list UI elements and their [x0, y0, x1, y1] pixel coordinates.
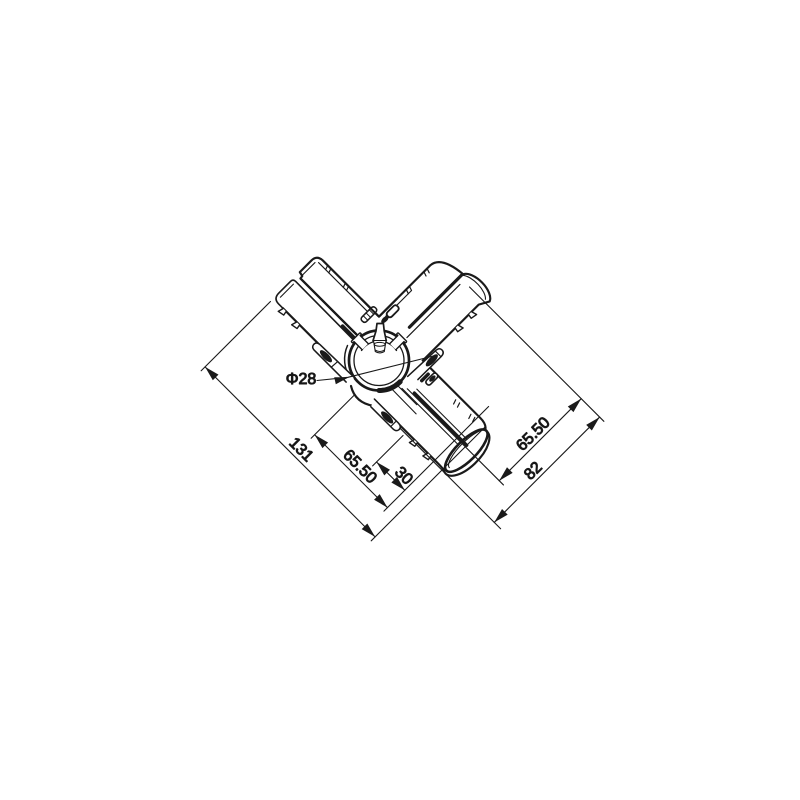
svg-text:82: 82 — [521, 459, 546, 484]
svg-text:65.50: 65.50 — [339, 447, 379, 487]
svg-text:65.50: 65.50 — [513, 414, 553, 454]
svg-text:131: 131 — [285, 434, 316, 465]
svg-text:Φ28: Φ28 — [286, 371, 317, 388]
svg-text:30: 30 — [391, 464, 416, 489]
